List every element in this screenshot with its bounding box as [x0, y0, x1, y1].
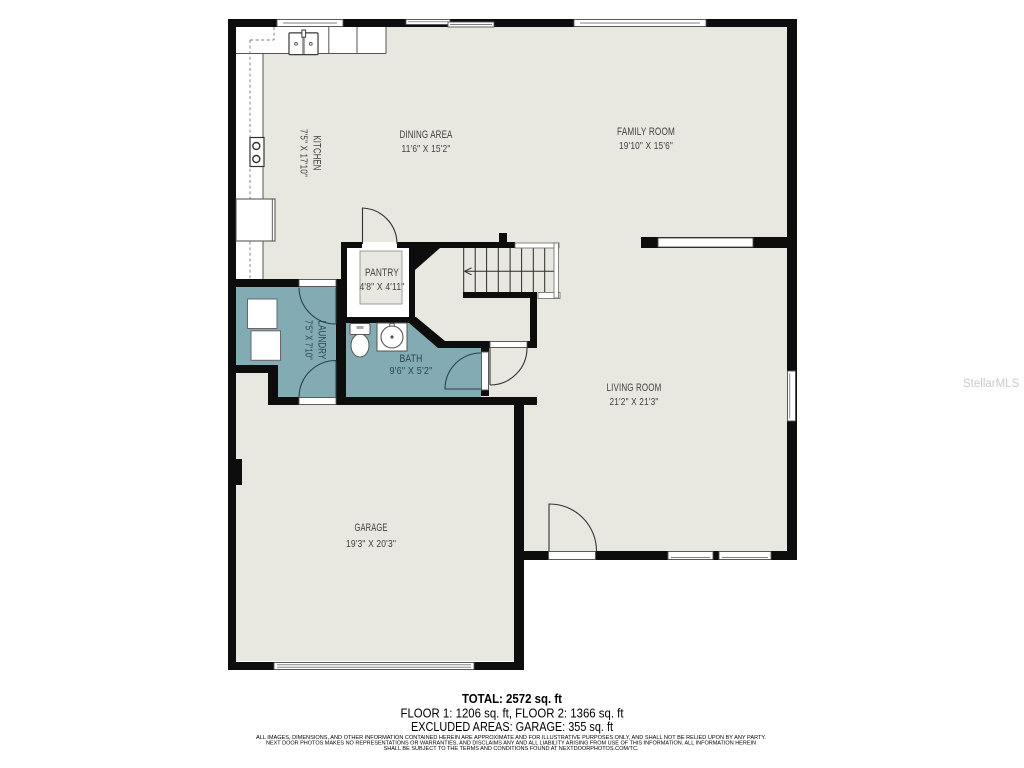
svg-text:19'3" X 20'3": 19'3" X 20'3": [346, 539, 396, 550]
svg-text:StellarMLS: StellarMLS: [963, 378, 1020, 390]
svg-text:7'5" X 17'10": 7'5" X 17'10": [298, 129, 309, 177]
svg-text:PANTRY: PANTRY: [365, 267, 399, 279]
svg-text:TOTAL: 2572 sq. ft: TOTAL: 2572 sq. ft: [462, 691, 563, 706]
svg-text:LAUNDRY: LAUNDRY: [316, 321, 328, 360]
svg-text:DINING AREA: DINING AREA: [400, 129, 453, 141]
svg-text:LIVING ROOM: LIVING ROOM: [607, 382, 662, 394]
svg-text:7'5" X 7'10": 7'5" X 7'10": [303, 320, 314, 360]
svg-text:FAMILY ROOM: FAMILY ROOM: [617, 126, 675, 138]
svg-text:21'2" X 21'3": 21'2" X 21'3": [610, 397, 659, 408]
svg-text:11'6" X 15'2": 11'6" X 15'2": [402, 144, 451, 155]
svg-text:4'8" X 4'11": 4'8" X 4'11": [360, 282, 405, 293]
svg-text:EXCLUDED AREAS: GARAGE: 355 sq: EXCLUDED AREAS: GARAGE: 355 sq. ft: [411, 719, 613, 734]
svg-text:KITCHEN: KITCHEN: [311, 136, 323, 171]
svg-text:19'10" X 15'6": 19'10" X 15'6": [619, 141, 673, 152]
svg-text:GARAGE: GARAGE: [355, 522, 388, 534]
svg-text:9'6" X 5'2": 9'6" X 5'2": [390, 366, 433, 377]
svg-text:BATH: BATH: [400, 353, 423, 365]
svg-text:SHALL BE SUBJECT TO THE TERMS: SHALL BE SUBJECT TO THE TERMS AND CONDIT…: [384, 746, 639, 752]
